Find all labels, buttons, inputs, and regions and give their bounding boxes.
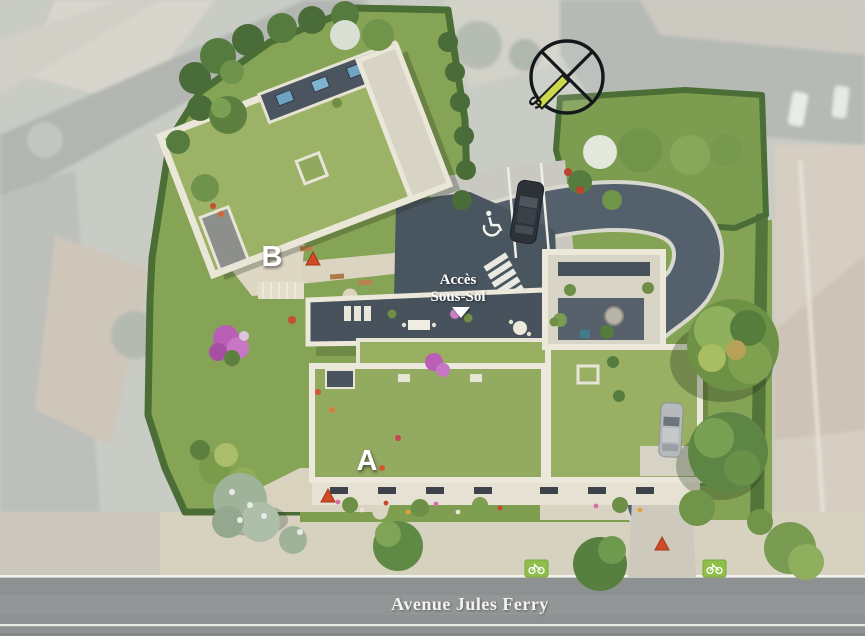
tree [362, 19, 394, 51]
site-plan-canvas: S B A Accès Sous-Sol Avenue Jules Ferry [0, 0, 865, 636]
basement-access-label-line1: Accès [440, 272, 477, 288]
planter [388, 310, 397, 319]
terrace-planter [564, 284, 576, 296]
bike-lane-marker [703, 560, 726, 577]
street-name-label: Avenue Jules Ferry [391, 594, 549, 614]
bench [358, 280, 372, 286]
road-line [0, 575, 865, 578]
tree [670, 135, 710, 175]
terrace-dark-band [558, 262, 650, 276]
road-line [0, 624, 865, 626]
lounger [364, 306, 371, 321]
tree [710, 134, 742, 166]
basement-access-label-line2: Sous-Sol [430, 289, 485, 305]
stairs [258, 282, 304, 299]
street-tree-blossom [279, 526, 307, 554]
faded-tree [27, 122, 63, 158]
round-table [513, 321, 527, 335]
roof-vent [470, 374, 482, 382]
planter [550, 318, 559, 327]
bike-lane-marker [525, 560, 548, 577]
street-zone [0, 512, 865, 636]
tree [618, 128, 662, 172]
parked-car-silver [659, 402, 684, 457]
roof-skylight [578, 366, 598, 383]
blossom-tree [583, 135, 617, 169]
roof-equipment [326, 370, 354, 388]
facade-openings [330, 487, 654, 494]
roof-vent [398, 374, 410, 382]
terrace-round-table [605, 307, 623, 325]
spa [580, 330, 590, 338]
sidewalk-shaded [0, 512, 160, 578]
blossom-tree [330, 20, 360, 50]
building-a-label: A [357, 445, 378, 477]
lounger [344, 306, 351, 321]
lounger [354, 306, 361, 321]
faded-tree [454, 21, 502, 69]
building-b-label: B [262, 241, 283, 273]
terrace-planter [642, 282, 654, 294]
planter [464, 314, 473, 323]
table [408, 320, 430, 330]
bench [330, 274, 344, 280]
